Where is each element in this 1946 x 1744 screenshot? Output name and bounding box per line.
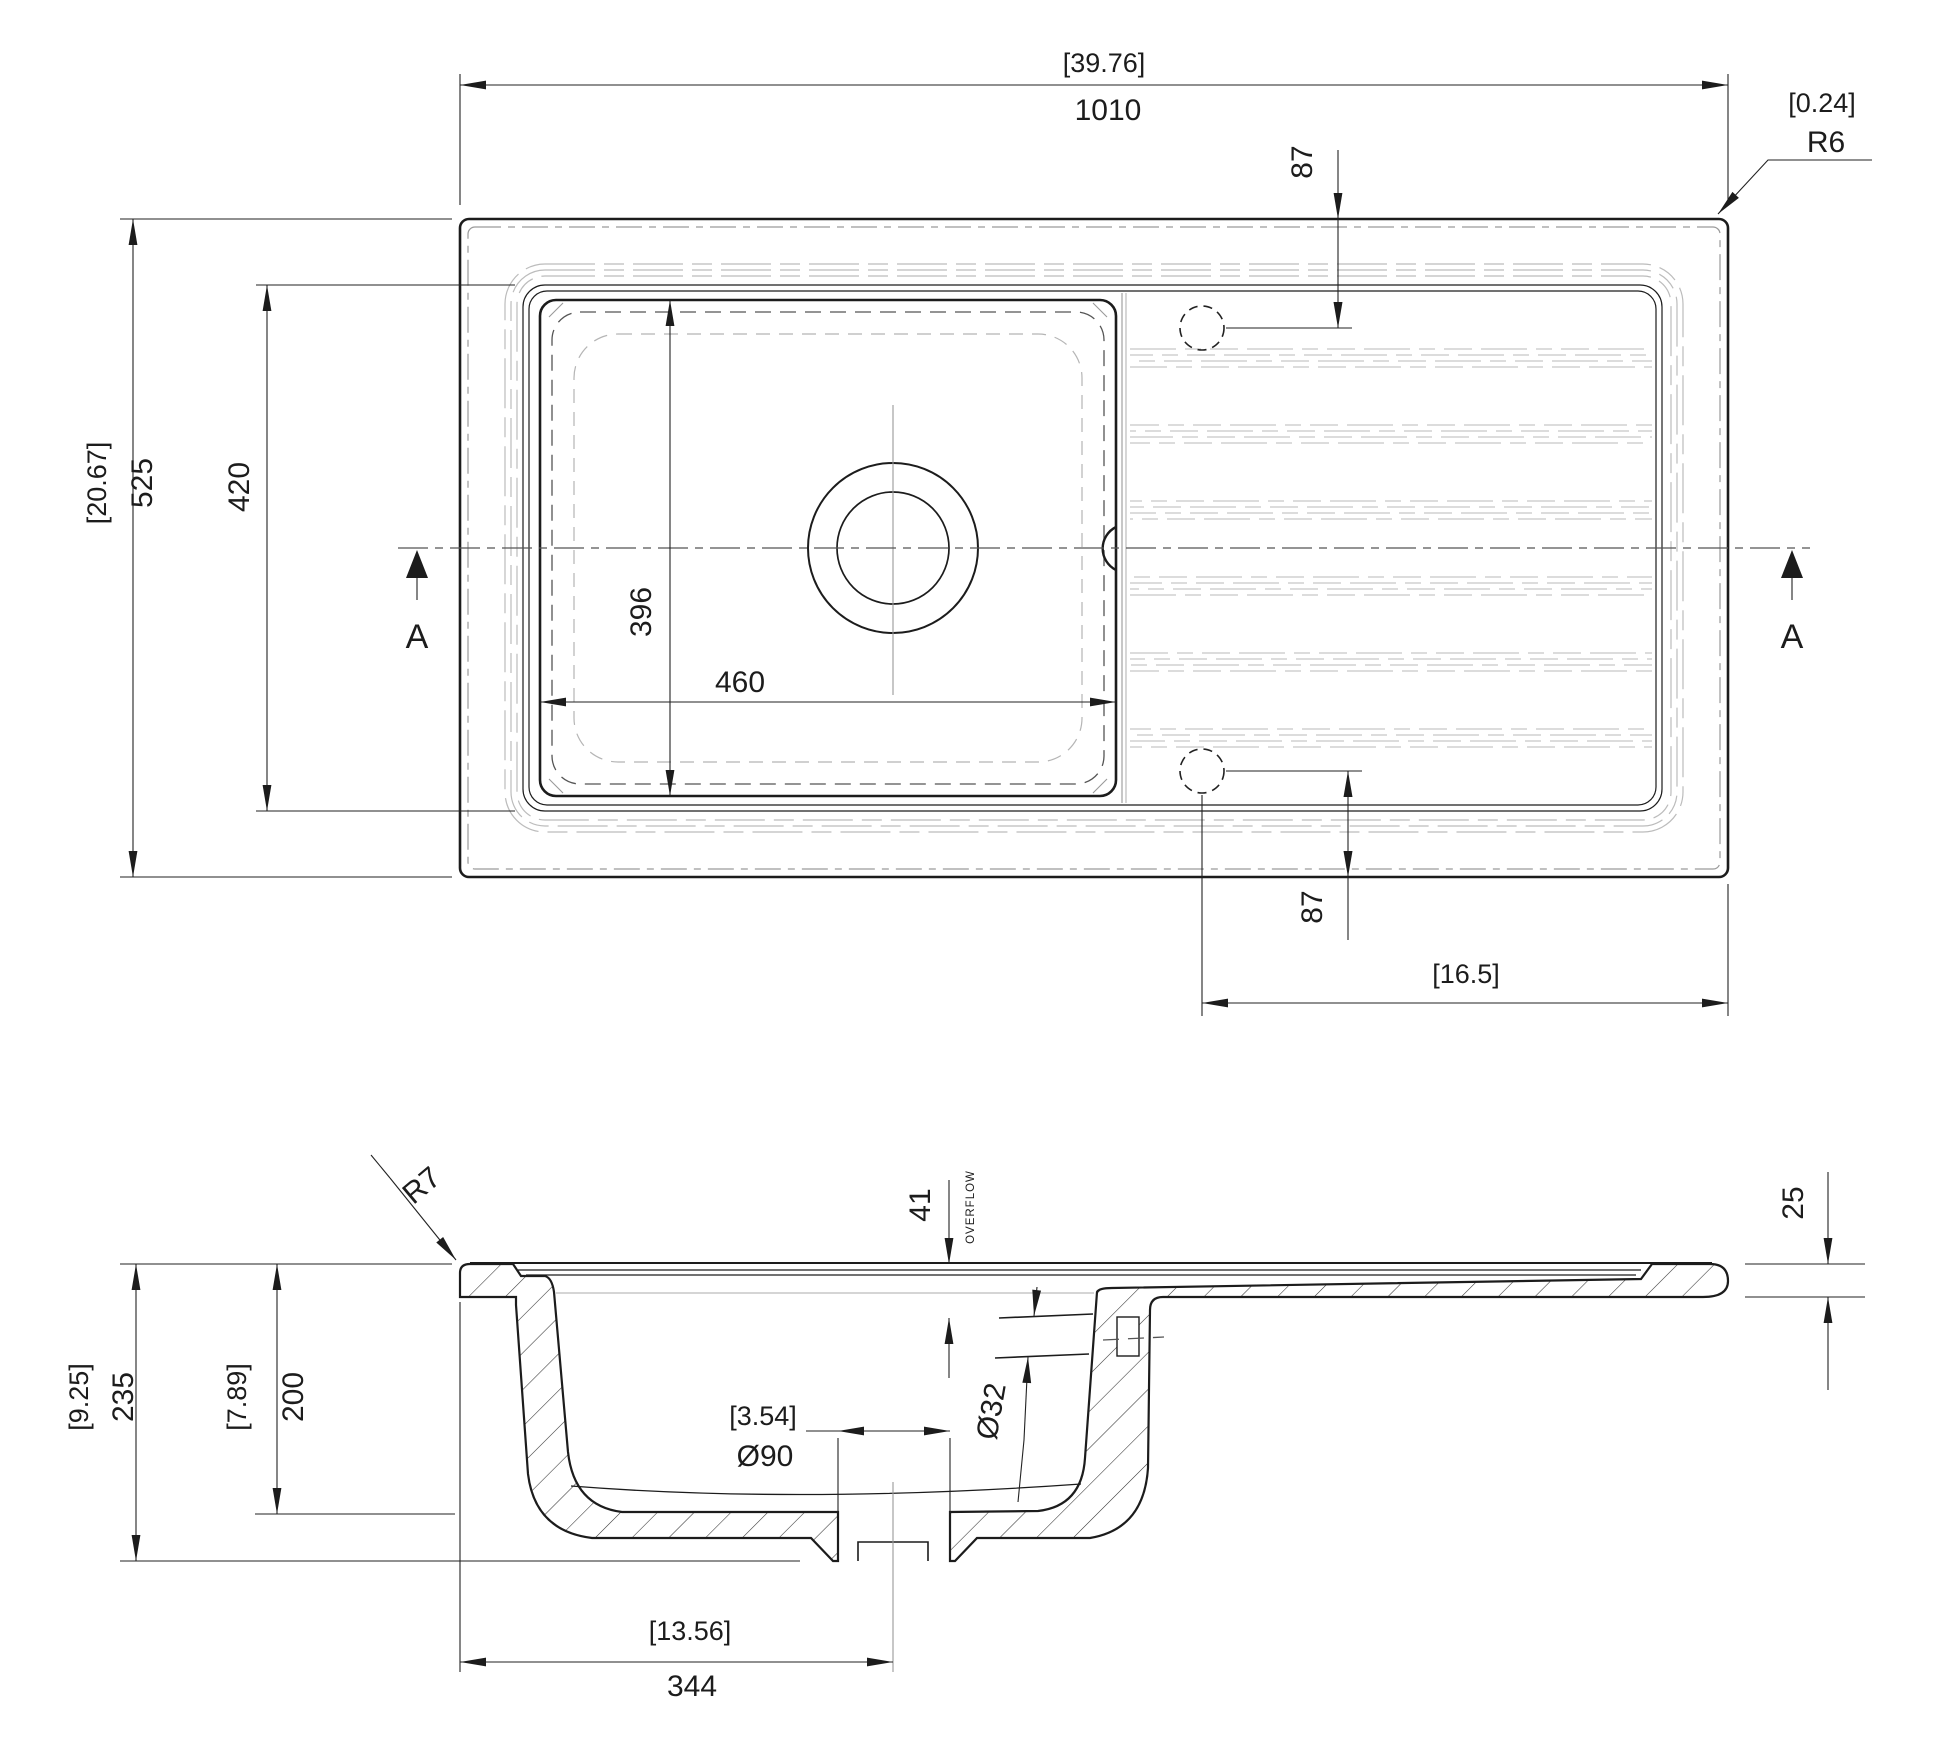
- callout-rim-radius: R7: [371, 1155, 456, 1260]
- dim-overflow-offset-mm: 41: [904, 1188, 937, 1221]
- dim-tap-offset-bottom: 87: [1296, 771, 1353, 940]
- dim-deck-thickness: 25: [1745, 1172, 1865, 1390]
- dim-tap-bottom-mm: 87: [1296, 890, 1329, 923]
- top-view: A A [39.76] 1010 [0.24] R6 [20.67] 525: [82, 48, 1872, 1016]
- dim-overflow-dia: Ø32: [970, 1287, 1037, 1502]
- sink-technical-drawing: A A [39.76] 1010 [0.24] R6 [20.67] 525: [0, 0, 1946, 1744]
- corner-radius-inches: [0.24]: [1788, 88, 1856, 118]
- dim-bowl-height-mm: 200: [277, 1372, 310, 1422]
- section-label-left: A: [406, 618, 429, 656]
- dim-deck-thickness-mm: 25: [1777, 1186, 1810, 1219]
- dim-bowl-height: [7.89] 200: [222, 1264, 455, 1514]
- rim-radius-label: R7: [397, 1161, 448, 1211]
- section-label-right: A: [1781, 618, 1804, 656]
- dim-depth-mm: 525: [126, 458, 159, 508]
- tap-hole-bottom: [1180, 749, 1224, 793]
- dim-tap-top-mm: 87: [1286, 145, 1319, 178]
- dim-drain-offset-mm: 344: [667, 1670, 717, 1703]
- overflow-label: OVERFLOW: [965, 1170, 977, 1244]
- dim-depth-inches: [20.67]: [82, 442, 112, 525]
- overflow-slot: [995, 1314, 1164, 1358]
- dim-bowl-depth-mm: 396: [625, 587, 658, 637]
- section-marker-right: A: [1781, 550, 1804, 656]
- side-view: R7 [9.25] 235 [7.89] 200 [13.56] 344: [64, 1155, 1865, 1703]
- section-right-wall-and-deck: [950, 1264, 1728, 1561]
- dim-drain-offset-inches: [13.56]: [649, 1616, 732, 1646]
- bowl-bottom-far-edge: [571, 1484, 1081, 1495]
- dim-height-inches: [9.25]: [64, 1363, 94, 1431]
- dim-bowl-width-mm: 460: [715, 666, 765, 699]
- dim-bowl-width: 460: [540, 666, 1116, 702]
- dim-tap-offset-top: 87: [1286, 145, 1343, 328]
- section-marker-left: A: [406, 550, 429, 656]
- drawing-page: A A [39.76] 1010 [0.24] R6 [20.67] 525: [0, 0, 1946, 1744]
- tap-hole-top: [1180, 306, 1224, 350]
- dim-height-mm: 235: [107, 1372, 140, 1422]
- dim-bowl-height-inches: [7.89]: [222, 1363, 252, 1431]
- dim-overflow-dia-label: Ø32: [970, 1381, 1012, 1443]
- callout-corner-radius: [0.24] R6: [1718, 88, 1872, 214]
- dim-drainer-offset: [16.5]: [1202, 795, 1728, 1016]
- dim-width-inches: [39.76]: [1063, 48, 1146, 78]
- dim-drainer-offset-inches: [16.5]: [1432, 959, 1500, 989]
- dim-drain-dia-inches: [3.54]: [729, 1401, 797, 1431]
- dim-recess-mm: 420: [223, 462, 256, 512]
- dim-overflow-offset: 41 OVERFLOW: [904, 1170, 977, 1378]
- corner-radius-label: R6: [1807, 126, 1845, 159]
- dim-overall-width: [39.76] 1010: [460, 48, 1728, 205]
- dim-drain-dia-label: Ø90: [737, 1440, 794, 1473]
- dim-width-mm: 1010: [1075, 94, 1142, 127]
